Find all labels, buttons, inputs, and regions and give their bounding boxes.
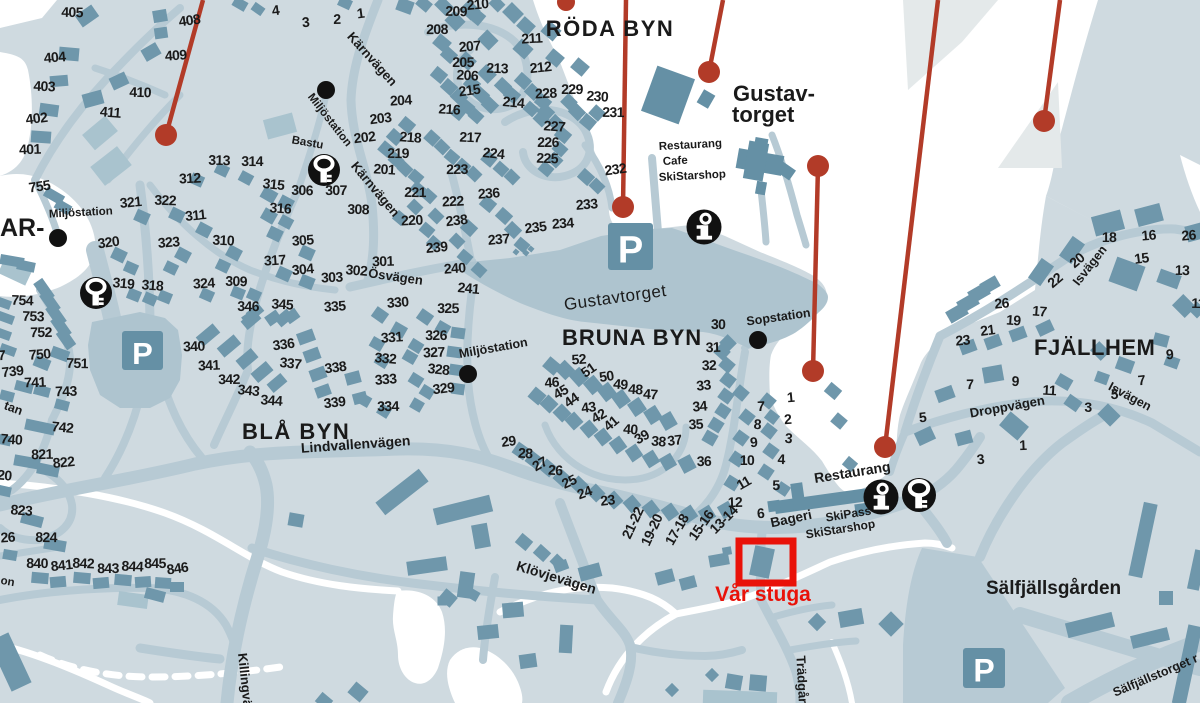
svg-text:227: 227 <box>543 117 566 135</box>
svg-text:217: 217 <box>459 129 482 146</box>
svg-text:31: 31 <box>705 339 721 355</box>
svg-text:211: 211 <box>521 29 543 46</box>
svg-text:on: on <box>0 575 15 589</box>
svg-text:311: 311 <box>184 206 207 224</box>
svg-text:821: 821 <box>31 446 54 462</box>
svg-text:844: 844 <box>121 557 144 574</box>
svg-text:215: 215 <box>458 81 482 100</box>
svg-text:846: 846 <box>166 559 190 578</box>
svg-text:29: 29 <box>500 432 517 450</box>
svg-text:23: 23 <box>599 491 616 509</box>
svg-text:21: 21 <box>979 321 996 339</box>
svg-text:331: 331 <box>380 328 404 346</box>
svg-text:219: 219 <box>387 145 410 161</box>
svg-text:10: 10 <box>740 452 755 468</box>
svg-text:739: 739 <box>1 362 25 380</box>
svg-text:2: 2 <box>333 11 341 27</box>
svg-text:319: 319 <box>112 274 136 292</box>
svg-text:741: 741 <box>24 374 47 391</box>
svg-text:335: 335 <box>323 297 347 315</box>
svg-text:327: 327 <box>423 344 446 361</box>
svg-text:Cafe: Cafe <box>663 155 689 168</box>
svg-text:304: 304 <box>291 260 315 278</box>
svg-text:26: 26 <box>0 528 16 545</box>
svg-text:P: P <box>132 336 153 371</box>
svg-text:204: 204 <box>389 91 412 108</box>
svg-text:841: 841 <box>50 556 74 574</box>
svg-text:BRUNA BYN: BRUNA BYN <box>562 325 702 350</box>
svg-text:843: 843 <box>97 560 119 576</box>
svg-text:220: 220 <box>401 211 424 228</box>
svg-text:16: 16 <box>1141 226 1157 243</box>
svg-text:33: 33 <box>695 376 712 394</box>
svg-text:344: 344 <box>260 391 283 409</box>
svg-text:235: 235 <box>524 218 548 237</box>
svg-text:torget: torget <box>732 102 795 127</box>
svg-text:38: 38 <box>651 432 668 449</box>
svg-text:49: 49 <box>613 375 630 392</box>
svg-text:320: 320 <box>97 233 121 252</box>
svg-text:326: 326 <box>425 327 447 343</box>
svg-text:30: 30 <box>711 316 726 332</box>
svg-text:Vår stuga: Vår stuga <box>715 583 811 606</box>
svg-text:336: 336 <box>272 335 296 354</box>
svg-text:405: 405 <box>61 4 84 20</box>
svg-text:37: 37 <box>666 431 683 449</box>
svg-text:238: 238 <box>445 211 469 229</box>
svg-text:753: 753 <box>22 308 45 325</box>
svg-text:340: 340 <box>183 338 206 355</box>
svg-text:34: 34 <box>692 397 708 414</box>
svg-text:330: 330 <box>386 293 410 311</box>
svg-text:36: 36 <box>697 453 713 469</box>
svg-text:7: 7 <box>966 376 974 392</box>
svg-text:11: 11 <box>1191 295 1200 311</box>
svg-text:234: 234 <box>551 214 574 231</box>
svg-text:15: 15 <box>1133 249 1150 267</box>
svg-text:12: 12 <box>728 494 744 510</box>
svg-text:210: 210 <box>466 0 490 13</box>
svg-text:214: 214 <box>502 93 526 111</box>
svg-text:47: 47 <box>643 386 659 403</box>
svg-text:13: 13 <box>1175 262 1190 278</box>
svg-text:35: 35 <box>688 416 704 433</box>
svg-text:26: 26 <box>1181 226 1197 243</box>
svg-text:307: 307 <box>325 182 347 198</box>
svg-text:203: 203 <box>369 109 393 128</box>
svg-text:218: 218 <box>399 128 422 145</box>
svg-text:301: 301 <box>372 253 395 270</box>
svg-text:313: 313 <box>208 152 231 168</box>
svg-text:315: 315 <box>262 175 286 193</box>
svg-text:231: 231 <box>602 104 625 120</box>
svg-text:404: 404 <box>43 48 67 66</box>
svg-text:230: 230 <box>586 87 609 104</box>
svg-text:845: 845 <box>144 555 167 571</box>
svg-text:240: 240 <box>443 259 467 277</box>
svg-text:19: 19 <box>1006 312 1022 329</box>
svg-text:321: 321 <box>119 193 143 211</box>
svg-text:345: 345 <box>271 295 294 312</box>
svg-text:309: 309 <box>225 273 248 289</box>
svg-text:324: 324 <box>192 274 215 291</box>
svg-text:752: 752 <box>30 324 53 340</box>
svg-text:409: 409 <box>164 46 187 64</box>
svg-text:229: 229 <box>561 81 583 97</box>
svg-text:207: 207 <box>458 37 482 55</box>
svg-text:212: 212 <box>529 58 553 76</box>
svg-text:401: 401 <box>19 141 42 158</box>
svg-text:403: 403 <box>33 78 56 95</box>
svg-text:5: 5 <box>772 477 780 493</box>
svg-text:AR-: AR- <box>0 214 44 242</box>
svg-text:RÖDA BYN: RÖDA BYN <box>546 16 675 41</box>
svg-text:339: 339 <box>323 393 347 411</box>
svg-text:317: 317 <box>263 251 286 268</box>
svg-text:346: 346 <box>237 298 260 314</box>
svg-text:P: P <box>973 653 994 689</box>
svg-text:842: 842 <box>72 555 95 572</box>
svg-text:742: 742 <box>51 418 75 436</box>
svg-text:226: 226 <box>537 134 559 150</box>
svg-text:208: 208 <box>426 21 448 37</box>
svg-text:318: 318 <box>141 276 165 294</box>
svg-text:241: 241 <box>457 279 481 297</box>
svg-text:48: 48 <box>628 380 644 397</box>
svg-text:343: 343 <box>237 381 261 399</box>
svg-text:P: P <box>618 229 643 271</box>
svg-text:303: 303 <box>321 269 344 286</box>
svg-text:329: 329 <box>432 379 456 398</box>
svg-text:222: 222 <box>442 192 465 209</box>
svg-text:408: 408 <box>178 11 202 30</box>
svg-text:236: 236 <box>477 184 500 202</box>
svg-text:20: 20 <box>0 466 13 483</box>
svg-text:Sälfjällsgården: Sälfjällsgården <box>986 578 1121 599</box>
svg-text:239: 239 <box>425 238 449 256</box>
svg-text:840: 840 <box>26 555 49 571</box>
svg-text:216: 216 <box>438 100 461 117</box>
svg-text:32: 32 <box>702 357 717 373</box>
svg-text:312: 312 <box>179 169 202 186</box>
svg-text:202: 202 <box>353 128 377 146</box>
svg-text:823: 823 <box>10 501 33 519</box>
svg-text:11: 11 <box>1042 382 1057 399</box>
svg-text:314: 314 <box>241 153 264 169</box>
svg-text:402: 402 <box>25 109 49 128</box>
svg-text:740: 740 <box>0 430 24 448</box>
svg-text:305: 305 <box>291 231 315 249</box>
svg-text:328: 328 <box>427 360 451 378</box>
svg-text:322: 322 <box>154 192 177 209</box>
svg-text:332: 332 <box>374 349 398 367</box>
svg-text:306: 306 <box>291 182 314 198</box>
svg-text:223: 223 <box>446 161 469 177</box>
svg-text:333: 333 <box>374 370 398 388</box>
svg-text:316: 316 <box>269 199 292 216</box>
svg-text:750: 750 <box>28 345 52 363</box>
svg-text:225: 225 <box>536 150 559 167</box>
svg-text:751: 751 <box>66 355 89 371</box>
svg-text:754: 754 <box>11 292 34 309</box>
svg-text:338: 338 <box>324 358 348 377</box>
svg-text:755: 755 <box>28 177 52 196</box>
svg-text:410: 410 <box>129 84 152 101</box>
svg-text:822: 822 <box>52 453 76 471</box>
svg-text:302: 302 <box>345 261 369 279</box>
svg-text:323: 323 <box>157 233 181 251</box>
svg-text:232: 232 <box>604 160 628 179</box>
svg-text:325: 325 <box>437 300 459 316</box>
svg-text:3: 3 <box>1084 399 1092 415</box>
svg-text:26: 26 <box>994 294 1010 311</box>
svg-text:23: 23 <box>955 331 971 348</box>
svg-text:337: 337 <box>279 354 303 372</box>
svg-text:18: 18 <box>1102 229 1117 245</box>
svg-text:237: 237 <box>487 230 511 248</box>
svg-text:824: 824 <box>35 529 58 545</box>
svg-text:201: 201 <box>373 160 396 177</box>
svg-text:334: 334 <box>377 398 400 414</box>
svg-text:228: 228 <box>535 84 558 101</box>
svg-text:308: 308 <box>347 201 370 218</box>
svg-text:411: 411 <box>99 103 122 121</box>
svg-text:FJÄLLHEM: FJÄLLHEM <box>1034 335 1155 360</box>
svg-text:310: 310 <box>212 231 235 248</box>
svg-text:213: 213 <box>486 60 509 77</box>
svg-text:17: 17 <box>1032 302 1048 319</box>
svg-text:209: 209 <box>445 3 468 19</box>
svg-text:224: 224 <box>482 144 506 162</box>
svg-text:221: 221 <box>404 184 427 200</box>
svg-text:743: 743 <box>55 383 78 400</box>
svg-text:233: 233 <box>575 195 599 213</box>
